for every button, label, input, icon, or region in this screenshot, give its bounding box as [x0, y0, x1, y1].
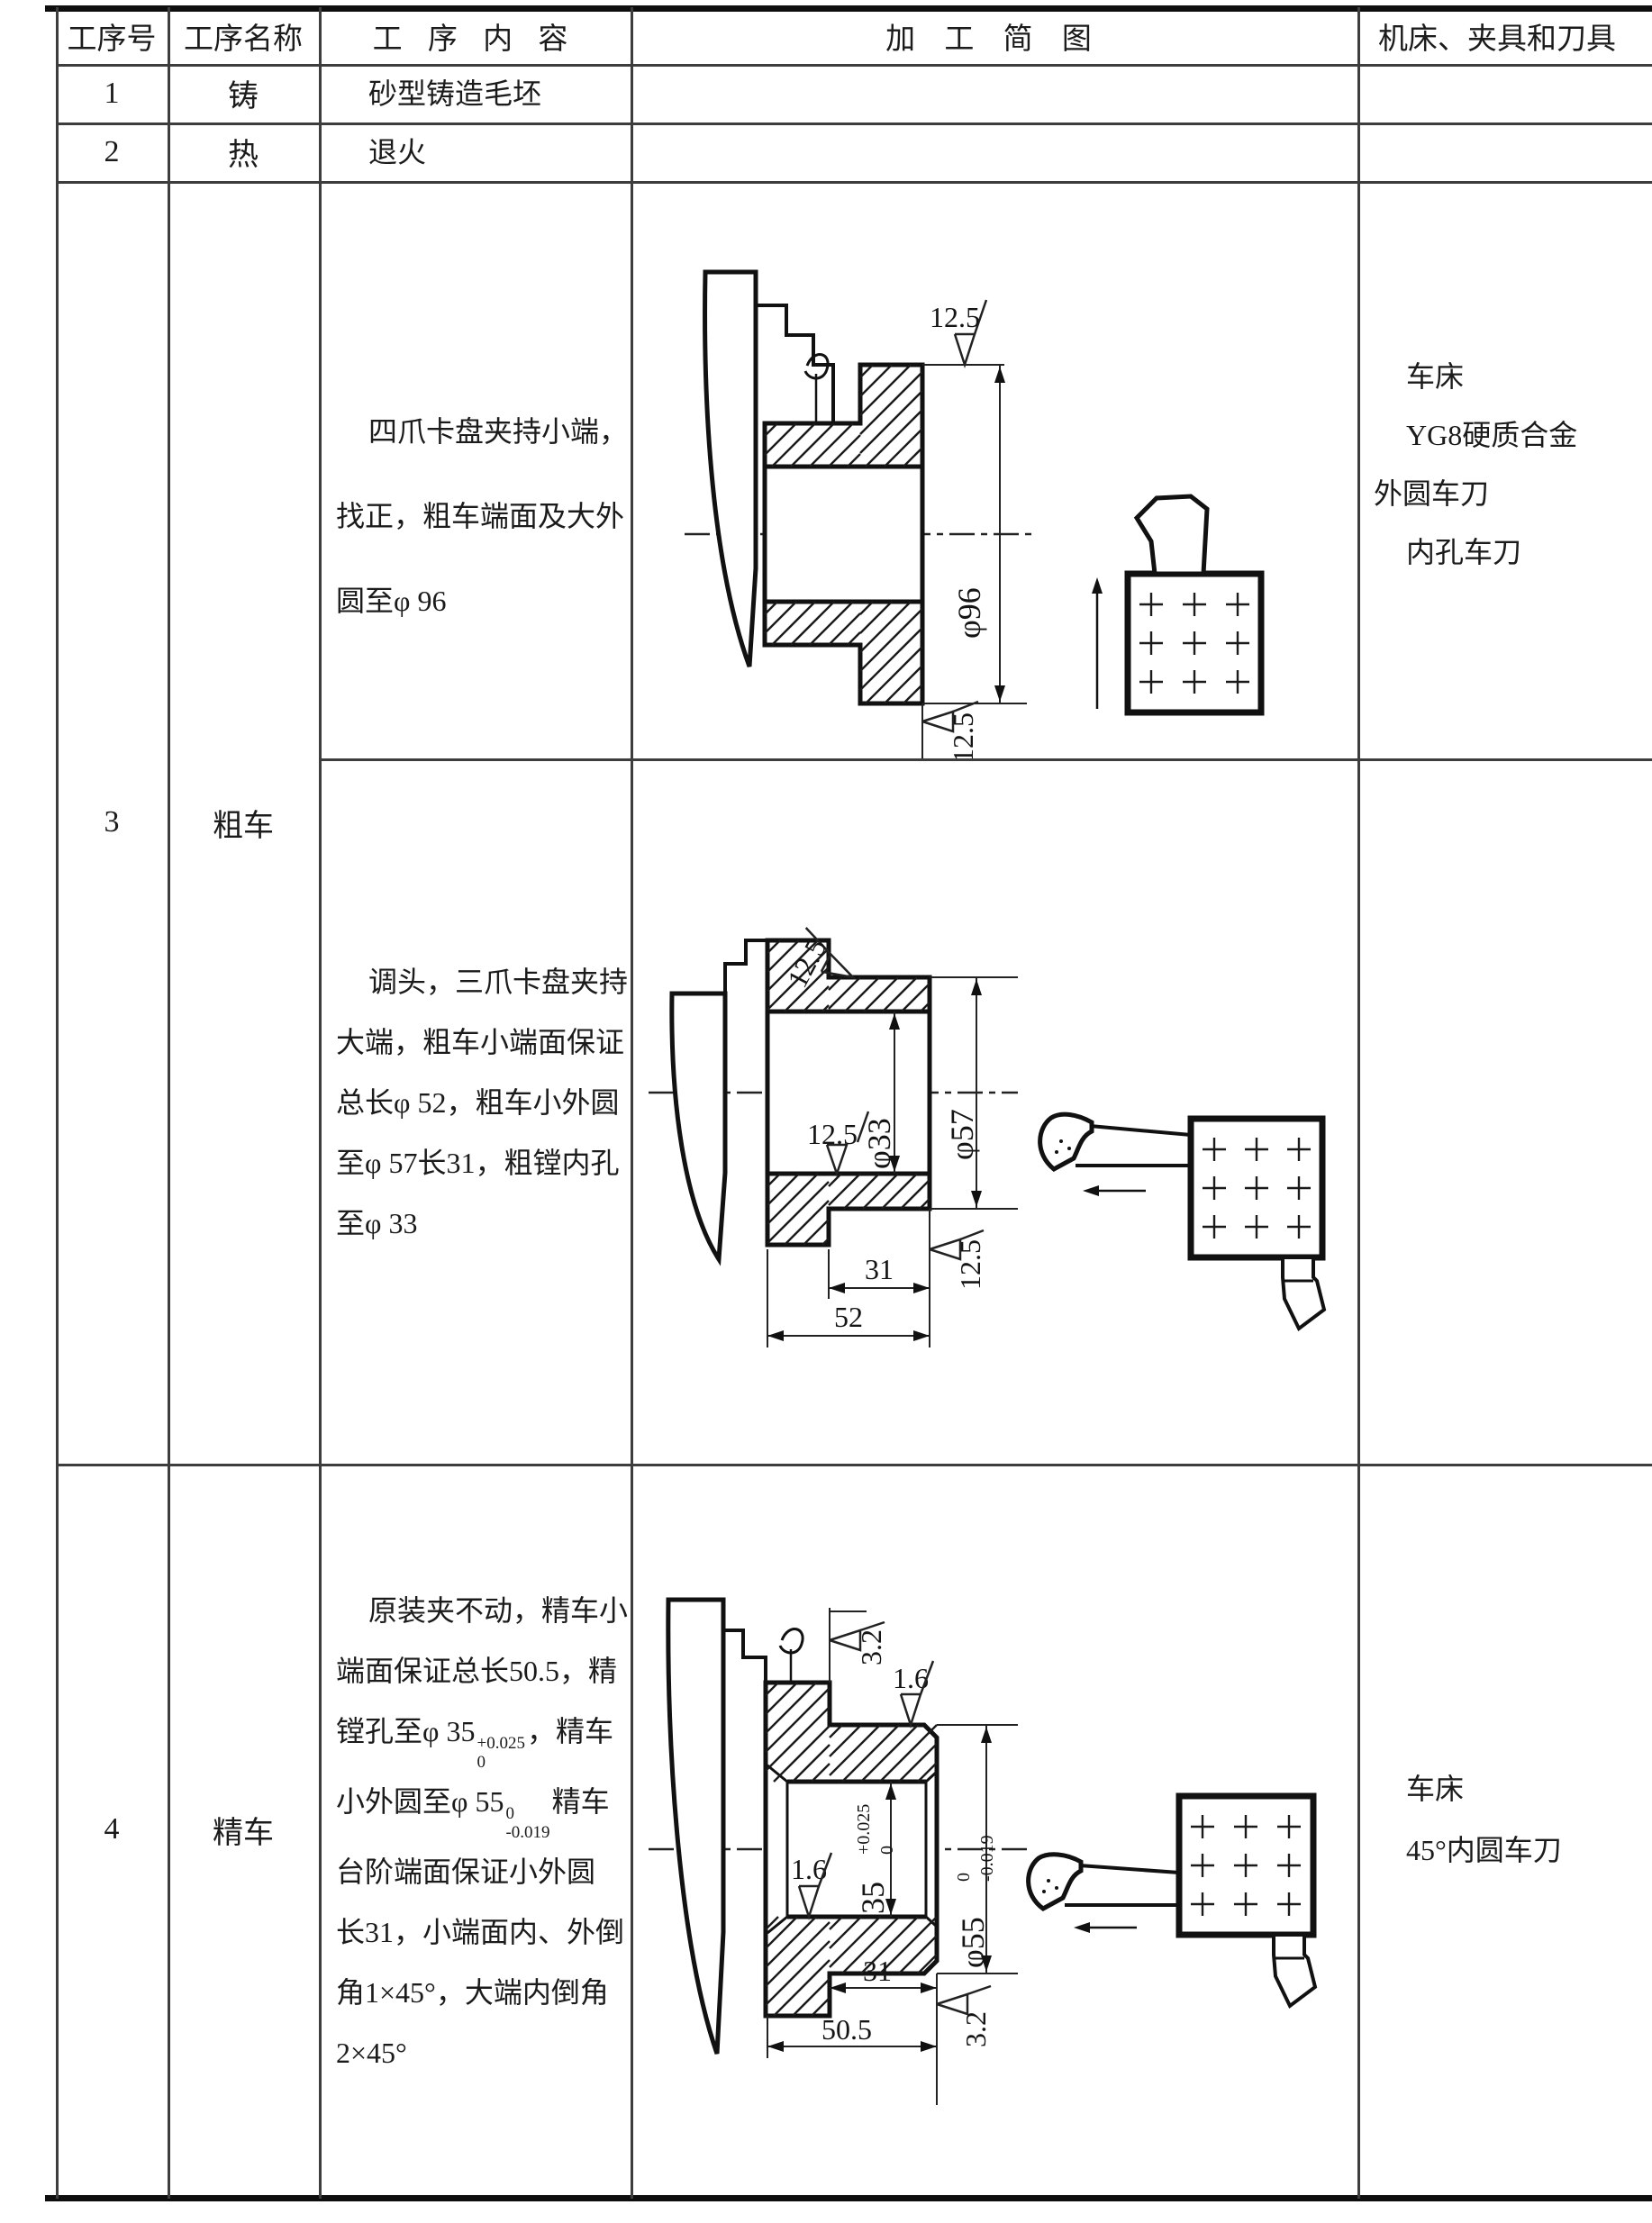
op-line: 找正，粗车端面及大外: [336, 474, 628, 558]
roughness-triangle: [901, 1694, 921, 1725]
tolerance-upper: 0: [505, 1804, 549, 1823]
sketch-finish-turn: 3.2 1.6 35 +0.025 0 1.6 φ55 0 -0.019: [631, 1464, 1357, 2198]
tolerance-stack: 0-0.019: [505, 1804, 549, 1842]
bore-tol-upper: +0.025: [854, 1804, 874, 1855]
header-machine-tools: 机床、夹具和刀具: [1357, 7, 1637, 64]
header-process-no: 工序号: [56, 7, 168, 64]
roughness-tail: [967, 1986, 991, 1994]
dim-arrowhead: [829, 1283, 845, 1293]
row2-no: 2: [56, 122, 168, 181]
roughness-symbol: [955, 334, 975, 365]
roughness-tail: [860, 1622, 885, 1630]
od-tol-lower: -0.019: [977, 1835, 997, 1882]
tool-line: 内孔车刀: [1374, 523, 1577, 582]
row2-name: 热: [168, 122, 319, 181]
length-label: 31: [865, 1253, 894, 1285]
dim-arrowhead: [767, 2041, 784, 2052]
chuck-jaw: [705, 272, 756, 667]
cutoff-tool-icon: [1283, 1257, 1324, 1329]
sketch-rough-turn-big-end: 12.5 φ96 12.5: [631, 181, 1357, 758]
bore-tol-lower: 0: [877, 1846, 897, 1855]
diameter-label: φ33: [861, 1118, 897, 1169]
op-line: 台阶端面保证小外圆: [336, 1842, 628, 1902]
length-label: 52: [834, 1301, 863, 1333]
dim-arrowhead: [767, 1330, 784, 1341]
row3-op-b: 调头，三爪卡盘夹持 大端，粗车小端面保证 总长φ 52，粗车小外圆 至φ 57长…: [336, 952, 628, 1254]
op-line: 至φ 33: [336, 1193, 628, 1254]
turning-tool-icon: [1137, 496, 1207, 574]
tool-insert-dot: [1055, 1886, 1058, 1890]
tool-insert-dot: [1047, 1879, 1050, 1883]
od-dimension-label: φ55 0 -0.019: [954, 1835, 997, 1968]
op-line: 圆至φ 96: [336, 558, 628, 643]
chuck-jaw: [668, 1600, 723, 2054]
op-line: 至φ 57长31，粗镗内孔: [336, 1133, 628, 1193]
length-label: 31: [863, 1955, 892, 1987]
roughness-value: 12.5: [954, 1239, 986, 1290]
tool-line: YG8硬质合金: [1374, 406, 1577, 465]
row1-name: 铸: [168, 64, 319, 122]
op-line: 原装夹不动，精车小: [336, 1581, 628, 1641]
dim-arrowhead: [913, 1330, 930, 1341]
boring-tool-icon: [1029, 1855, 1081, 1909]
dim-arrowhead: [994, 685, 1005, 702]
bore-value: 35: [855, 1882, 891, 1914]
tolerance-lower: 0: [477, 1753, 524, 1772]
row4-tools: 车床 45°内圆车刀: [1374, 1758, 1562, 1881]
chuck-jaw: [672, 994, 725, 1259]
op-text: 精车: [552, 1785, 610, 1818]
row3-name: 粗车: [168, 181, 319, 1464]
length-label: 50.5: [821, 2013, 872, 2046]
dim-arrowhead: [981, 1727, 992, 1743]
diameter-label: φ57: [944, 1109, 980, 1160]
tool-insert-dot: [1055, 1150, 1058, 1154]
row4-no: 4: [56, 1464, 168, 2195]
feed-arrowhead: [1092, 577, 1103, 594]
tool-insert-dot: [1067, 1147, 1071, 1150]
col2-divider: [319, 7, 322, 2199]
chuck-steps: [723, 1600, 766, 1683]
row3-tools: 车床 YG8硬质合金 外圆车刀 内孔车刀: [1374, 348, 1577, 582]
op-line: 角1×45°，大端内倒角: [336, 1963, 628, 2023]
dim-arrowhead: [994, 367, 1005, 383]
op-line: 端面保证总长50.5，精: [336, 1641, 628, 1701]
feed-arrowhead: [1083, 1185, 1099, 1196]
op-line: 小外圆至φ 550-0.019精车: [336, 1772, 628, 1842]
tool-insert-dot: [1042, 1890, 1046, 1893]
tool-line: 车床: [1374, 1758, 1562, 1819]
tool-line: 45°内圆车刀: [1374, 1819, 1562, 1881]
op-text: 小外圆至φ 55: [336, 1785, 504, 1818]
dim-arrowhead: [971, 1191, 982, 1207]
op-line: 镗孔至φ 35+0.0250，精车: [336, 1701, 628, 1772]
tool-line: 外圆车刀: [1374, 465, 1577, 523]
op-line: 2×45°: [336, 2023, 628, 2083]
tool-insert-dot: [1059, 1139, 1063, 1143]
dim-arrowhead: [971, 979, 982, 995]
op-text: 镗孔至φ 35: [336, 1715, 475, 1747]
row2-content: 退火: [336, 136, 426, 168]
row1-no: 1: [56, 64, 168, 122]
roughness-triangle: [937, 1994, 967, 2014]
op-line: 长31，小端面内、外倒: [336, 1902, 628, 1963]
row3-op-a: 四爪卡盘夹持小端， 找正，粗车端面及大外 圆至φ 96: [336, 389, 628, 643]
chuck-steps: [725, 940, 767, 994]
op-line: 调头，三爪卡盘夹持: [336, 952, 628, 1012]
tolerance-lower: -0.019: [505, 1823, 549, 1842]
tolerance-upper: +0.025: [477, 1734, 524, 1753]
roughness-tail: [960, 1230, 984, 1239]
op-line: 四爪卡盘夹持小端，: [336, 389, 628, 474]
tool-shank: [1090, 1126, 1191, 1135]
od-value: φ55: [955, 1917, 991, 1968]
roughness-value: 12.5: [947, 712, 979, 758]
dim-arrowhead: [921, 1983, 937, 1993]
row3-no: 3: [56, 181, 168, 1464]
tolerance-stack: +0.0250: [477, 1734, 524, 1772]
od-tol-upper: 0: [954, 1873, 974, 1882]
row4-op: 原装夹不动，精车小 端面保证总长50.5，精 镗孔至φ 35+0.0250，精车…: [336, 1581, 628, 2083]
process-card-page: 工序号 工序名称 工 序 内 容 加 工 简 图 机床、夹具和刀具 1 铸 砂型…: [0, 0, 1652, 2223]
header-process-content: 工 序 内 容: [319, 7, 631, 64]
dim-arrowhead: [830, 1983, 846, 1993]
roughness-value: 3.2: [959, 2011, 992, 2047]
op-line: 大端，粗车小端面保证: [336, 1012, 628, 1073]
header-process-name: 工序名称: [168, 7, 319, 64]
cutoff-tool-icon: [1274, 1935, 1315, 2006]
op-text: ，精车: [527, 1715, 613, 1747]
sketch-rough-turn-small-end: 12.5 12.5 φ33 φ57 12.5 31 52: [631, 758, 1357, 1464]
row1-content: 砂型铸造毛坯: [336, 77, 541, 110]
dim-arrowhead: [921, 2041, 937, 2052]
feed-arrowhead: [1074, 1922, 1090, 1933]
chuck-steps: [756, 305, 833, 423]
row4-name: 精车: [168, 1464, 319, 2195]
roughness-value: 3.2: [855, 1629, 887, 1665]
op-line: 总长φ 52，粗车小外圆: [336, 1073, 628, 1133]
col4-divider: [1357, 7, 1360, 2199]
tool-shank: [1079, 1865, 1179, 1873]
roughness-value: 12.5: [930, 301, 980, 333]
boring-tool-icon: [1040, 1114, 1092, 1169]
header-sketch: 加 工 简 图: [631, 7, 1357, 64]
diameter-label: φ96: [951, 587, 987, 639]
dim-arrowhead: [913, 1283, 930, 1293]
tool-line: 车床: [1374, 348, 1577, 406]
